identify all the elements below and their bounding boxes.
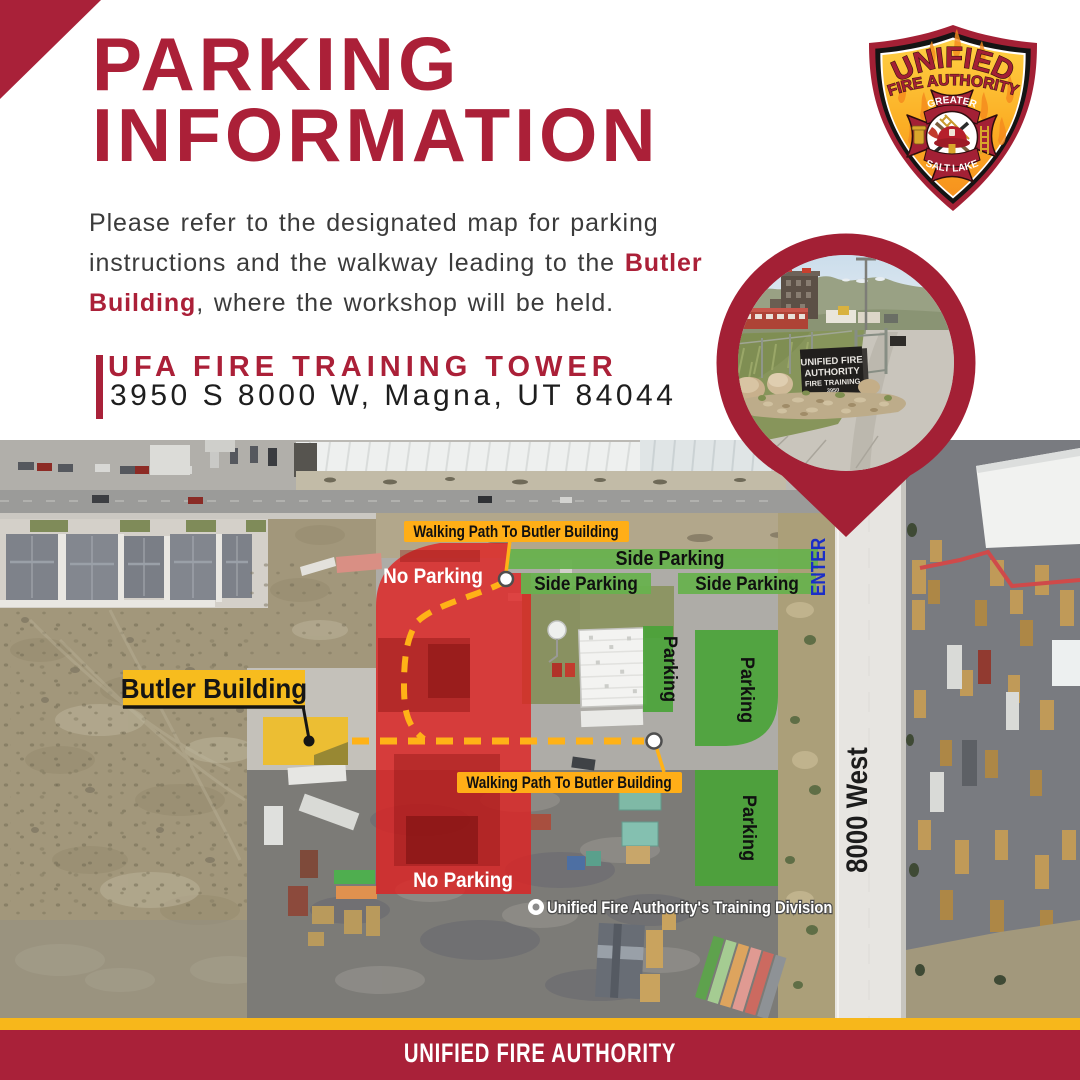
svg-text:Side Parking: Side Parking bbox=[616, 548, 725, 570]
svg-text:Parking: Parking bbox=[739, 795, 761, 861]
svg-text:Side Parking: Side Parking bbox=[534, 573, 638, 594]
svg-text:Butler Building: Butler Building bbox=[121, 673, 307, 704]
svg-text:Side Parking: Side Parking bbox=[695, 573, 799, 594]
svg-text:Walking Path To Butler Buildin: Walking Path To Butler Building bbox=[466, 774, 671, 793]
svg-text:No Parking: No Parking bbox=[383, 565, 483, 588]
svg-text:Unified Fire Authority's Train: Unified Fire Authority's Training Divisi… bbox=[547, 899, 832, 917]
svg-text:No Parking: No Parking bbox=[413, 869, 513, 892]
svg-text:Parking: Parking bbox=[737, 657, 759, 723]
svg-text:Parking: Parking bbox=[660, 636, 682, 702]
svg-text:Walking Path To Butler Buildin: Walking Path To Butler Building bbox=[413, 523, 618, 542]
svg-text:8000 West: 8000 West bbox=[840, 747, 873, 873]
